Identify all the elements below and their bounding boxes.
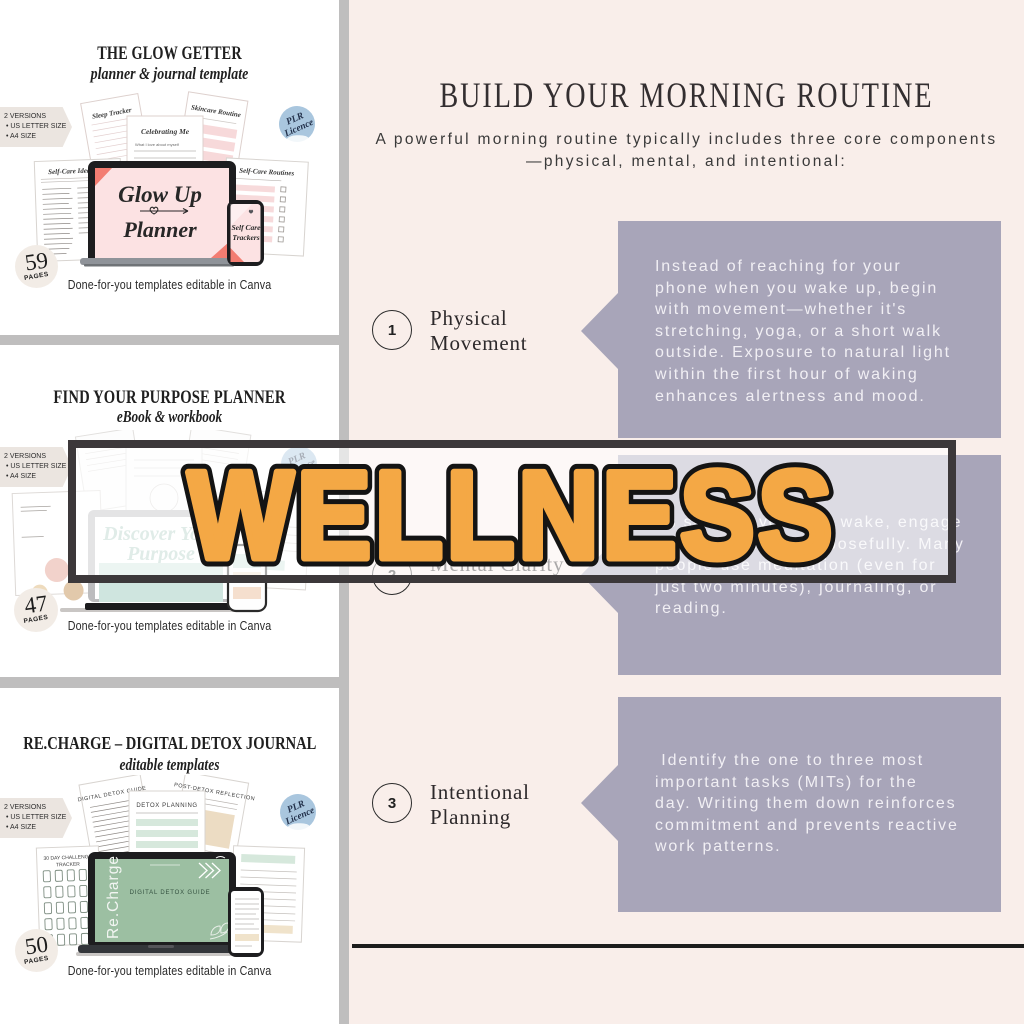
svg-text:What I love about myself: What I love about myself (135, 142, 180, 147)
svg-text:Planner: Planner (122, 217, 197, 242)
svg-text:Trackers: Trackers (232, 233, 259, 242)
svg-text:Self Care: Self Care (232, 223, 262, 232)
svg-text:Self-Care Ideas: Self-Care Ideas (48, 167, 93, 177)
svg-text:Celebrating Me: Celebrating Me (141, 127, 190, 136)
svg-text:Re.Charge: Re.Charge (105, 855, 122, 939)
svg-text:Glow Up: Glow Up (118, 182, 202, 207)
svg-text:DIGITAL DETOX GUIDE: DIGITAL DETOX GUIDE (130, 890, 211, 896)
svg-text:DETOX PLANNING: DETOX PLANNING (136, 803, 197, 809)
svg-text:TRACKER: TRACKER (56, 862, 80, 869)
svg-text:WELLNESS: WELLNESS (188, 447, 836, 585)
